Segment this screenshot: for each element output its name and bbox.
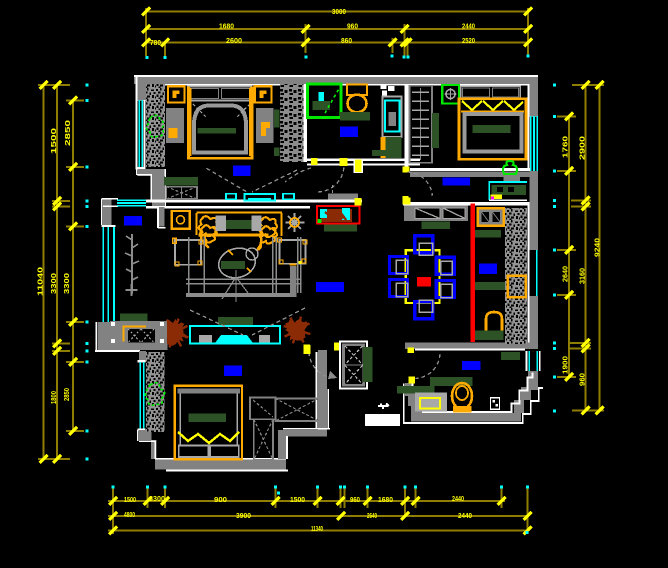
svg-text:3900: 3900 <box>236 513 251 520</box>
svg-text:1680: 1680 <box>378 497 393 504</box>
svg-text:1500: 1500 <box>124 497 136 504</box>
svg-text:900: 900 <box>214 497 227 504</box>
svg-text:2520: 2520 <box>462 38 475 45</box>
svg-text:1680: 1680 <box>219 24 234 31</box>
svg-text:11340: 11340 <box>311 526 323 533</box>
svg-text:3000: 3000 <box>332 9 346 16</box>
svg-text:860: 860 <box>341 38 352 45</box>
svg-text:4800: 4800 <box>124 512 135 519</box>
svg-text:3300: 3300 <box>51 273 58 294</box>
svg-text:780: 780 <box>150 40 161 47</box>
svg-text:2440: 2440 <box>458 513 472 520</box>
svg-text:2900: 2900 <box>580 136 587 160</box>
svg-text:3300: 3300 <box>149 496 165 503</box>
svg-text:3300: 3300 <box>64 273 71 294</box>
svg-text:2440: 2440 <box>452 496 464 503</box>
svg-text:960: 960 <box>580 373 587 386</box>
svg-text:960: 960 <box>347 24 358 31</box>
svg-text:1800: 1800 <box>51 391 58 404</box>
svg-text:2640: 2640 <box>367 513 377 520</box>
svg-text:960: 960 <box>350 497 360 504</box>
svg-text:2850: 2850 <box>65 120 72 146</box>
svg-text:9240: 9240 <box>595 238 602 257</box>
svg-text:11040: 11040 <box>38 267 45 296</box>
svg-text:2600: 2600 <box>226 38 242 45</box>
svg-text:1500: 1500 <box>290 497 305 504</box>
svg-text:2640: 2640 <box>563 266 570 282</box>
svg-text:1760: 1760 <box>563 136 570 158</box>
svg-text:2850: 2850 <box>64 388 71 401</box>
svg-text:2440: 2440 <box>462 24 475 31</box>
svg-text:1900: 1900 <box>563 356 570 374</box>
svg-text:1500: 1500 <box>51 128 58 154</box>
svg-text:3160: 3160 <box>580 268 587 284</box>
